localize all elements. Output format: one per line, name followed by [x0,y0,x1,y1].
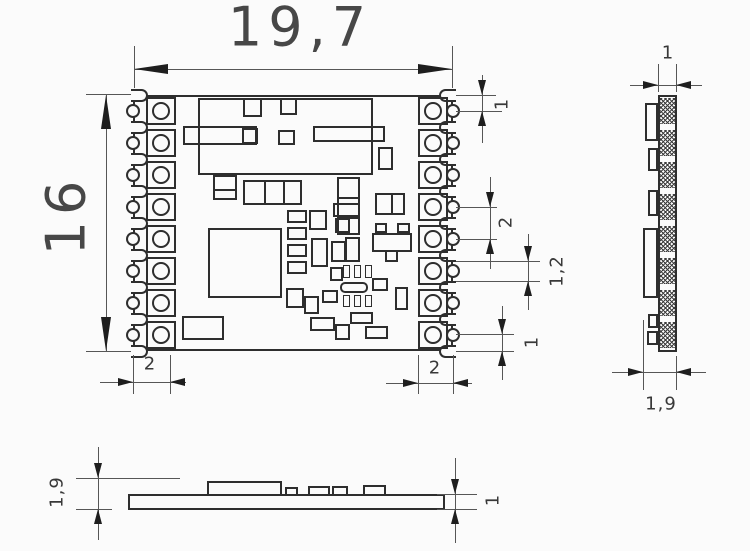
castellation-half-hole [126,328,140,342]
dim-pad-length-right-label: 2 [429,358,441,379]
component-outline [285,487,298,496]
technical-drawing-canvas: 19,7 16 1 2 1,2 1 2 2 1 1,9 1,9 1 [0,0,750,551]
component-outline [311,238,328,267]
component-outline [304,296,319,314]
pad-hole [424,230,442,248]
section-hatch [660,258,675,284]
component-outline [365,265,372,278]
pad-hole [424,262,442,280]
dimension-arrow [101,317,111,351]
section-hatch [660,130,675,156]
pad-hole [424,198,442,216]
dim-pad-length-left-label: 2 [144,354,156,375]
component-outline [648,148,658,171]
castellation-half-hole [446,264,460,278]
component-outline [213,175,237,200]
pad-hole [152,230,170,248]
dim-pin-pitch-label: 2 [496,216,517,228]
extension-line [658,64,659,92]
component-outline [331,241,346,262]
extension-line [453,355,454,394]
dim-side-total-width-label: 1,9 [645,394,677,415]
dimension-arrow [478,80,486,95]
dimension-arrow [418,64,452,74]
dimension-line [630,85,702,86]
component-outline [322,290,338,303]
pad-hole [152,166,170,184]
castellation-half-hole [126,168,140,182]
dimension-arrow [453,379,468,387]
dimension-arrow [524,281,532,296]
pad-hole [152,294,170,312]
component-outline [280,98,297,115]
component-outline [375,193,405,215]
component-outline [333,203,360,217]
component-outline [308,486,330,496]
pad-hole [152,102,170,120]
dimension-arrow [486,239,494,254]
component-outline [365,295,372,307]
component-outline [375,223,387,233]
section-hatch [660,226,675,252]
dimension-arrow [101,95,111,129]
component-outline [343,295,350,307]
component-outline [313,126,385,142]
pad-hole [152,262,170,280]
pad-hole [152,326,170,344]
dimension-arrow [676,368,691,376]
dimension-arrow [118,378,133,386]
section-hatch [660,194,675,220]
dimension-arrow [451,509,459,524]
dimension-line [76,478,180,479]
section-hatch [660,162,675,188]
component-outline [287,210,307,223]
pcb-side-profile [128,494,445,510]
dimension-arrow [94,509,102,524]
dim-left-height-label: 16 [35,175,98,256]
dim-side-width-label: 1 [662,43,674,64]
pad-hole [424,134,442,152]
component-outline [243,98,262,117]
component-outline [372,278,388,291]
section-hatch [660,322,675,348]
component-outline [332,486,348,496]
dimension-arrow [451,479,459,494]
dim-bottom-total-height-label: 1,9 [47,476,68,508]
dimension-arrow [628,368,643,376]
section-hatch [660,98,675,124]
component-outline [182,316,224,340]
pad-hole [152,134,170,152]
dimension-arrow [134,64,168,74]
castellation-half-hole [446,296,460,310]
component-outline [208,228,282,298]
castellation-half-hole [126,200,140,214]
extension-line [455,458,456,543]
component-outline [397,223,410,233]
component-outline [309,210,327,230]
component-outline [395,287,408,310]
component-outline [648,314,658,328]
dimension-arrow [676,81,691,89]
castellation-half-hole [126,136,140,150]
dim-pad-height-label: 1,2 [547,255,568,287]
component-outline [647,331,658,345]
dimension-line [86,351,131,352]
component-outline [243,180,302,205]
component-divider [339,197,358,199]
component-divider [391,195,393,213]
pad-hole [424,102,442,120]
dimension-line [437,494,477,495]
component-outline [643,228,658,298]
component-outline [354,265,361,278]
component-outline [645,103,658,141]
component-outline [363,485,386,496]
extension-line [502,306,503,380]
dimension-line [612,372,706,373]
dim-pin-top-offset-label: 1 [492,98,513,110]
dimension-arrow [478,111,486,126]
component-outline [365,326,388,339]
component-outline [287,227,307,240]
extension-line [106,94,107,351]
castellation-half-hole [126,264,140,278]
extension-line [133,355,134,394]
extension-line [98,447,99,540]
component-outline [343,265,350,278]
component-divider [283,182,285,203]
dimension-line [456,334,514,335]
pad-hole [424,166,442,184]
component-outline [278,130,295,145]
component-outline [330,267,343,281]
dim-top-width-label: 19,7 [228,0,372,59]
dimension-arrow [486,192,494,207]
dimension-arrow [498,351,506,366]
dimension-arrow [94,463,102,478]
component-outline [310,317,335,331]
component-outline [286,288,304,308]
side-profile-outline [658,95,677,352]
castellation-half-hole [126,296,140,310]
component-outline [345,237,360,262]
extension-line [170,355,171,394]
component-divider [264,182,266,203]
extension-line [452,46,453,88]
pad-hole [424,294,442,312]
castellation-half-hole [446,168,460,182]
component-outline [335,218,350,233]
extension-line [418,355,419,394]
dimension-line [134,69,452,70]
dimension-arrow [524,246,532,261]
component-outline [287,244,307,257]
component-outline [207,481,282,496]
dimension-arrow [403,379,418,387]
dim-pin-bottom-offset-label: 1 [522,336,543,348]
dimension-line [456,95,496,96]
pad-hole [424,326,442,344]
section-hatch [660,290,675,316]
component-outline [648,190,658,216]
dim-bottom-pcb-thickness-label: 1 [483,494,504,506]
dimension-arrow [643,81,658,89]
component-outline [354,295,361,307]
castellation-half-hole [126,104,140,118]
component-outline [242,128,258,144]
component-outline [287,261,307,274]
component-outline [385,250,398,262]
component-outline [335,324,350,340]
component-outline [350,312,373,324]
pad-hole [152,198,170,216]
dimension-arrow [170,378,185,386]
component-outline [340,282,368,293]
component-divider [215,189,235,191]
dimension-arrow [498,319,506,334]
castellation-half-hole [126,232,140,246]
castellation-half-hole [446,328,460,342]
castellation-half-hole [446,136,460,150]
extension-line [643,320,644,390]
component-outline [378,147,393,170]
extension-line [490,177,491,269]
